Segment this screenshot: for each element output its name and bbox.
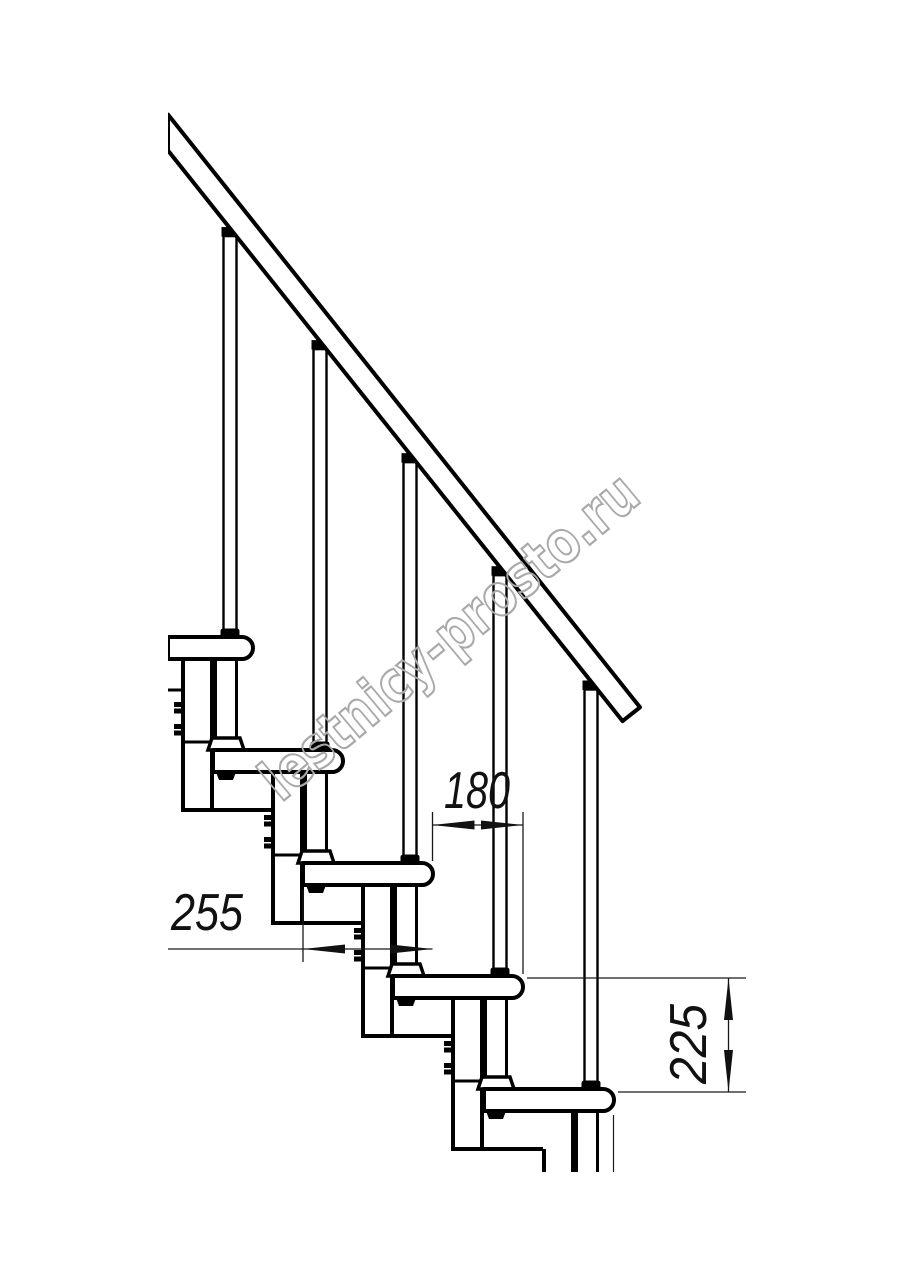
module-box: [183, 659, 212, 810]
baluster-base-cap: [491, 968, 510, 977]
baluster-base-cap: [401, 855, 420, 864]
module-box: [453, 998, 482, 1149]
dimension-arrow: [303, 945, 345, 954]
drawing-canvas: 180 255 225 lestnicy-prosto.ru: [0, 0, 914, 1280]
tread: [393, 976, 523, 998]
dimension-rise-label: 225: [660, 1003, 718, 1085]
bolt: [354, 928, 363, 933]
baluster-base-cap: [582, 1081, 601, 1090]
bolt: [264, 815, 273, 820]
tread: [168, 637, 253, 659]
bolt: [444, 1070, 453, 1075]
bolt: [354, 957, 363, 962]
dimension-arrow: [724, 978, 733, 1020]
staircase-technical-drawing: 180 255 225 lestnicy-prosto.ru: [0, 0, 914, 1280]
support-post: [216, 659, 237, 738]
dimension-arrow: [724, 1050, 733, 1092]
bolt: [264, 844, 273, 849]
dimension-depth-label: 255: [170, 884, 244, 942]
bolt: [174, 709, 183, 714]
dimension-run-label: 180: [444, 762, 510, 820]
bolt: [444, 1048, 453, 1053]
bolt: [174, 731, 183, 736]
tread: [303, 863, 433, 885]
tread: [484, 1089, 614, 1111]
dimension-arrow: [433, 821, 475, 830]
bolt: [264, 822, 273, 827]
bolt: [444, 1041, 453, 1046]
module-box: [363, 885, 392, 1036]
baluster: [224, 236, 237, 637]
bolt: [354, 950, 363, 955]
baluster-base-cap: [221, 629, 240, 638]
bolt: [174, 702, 183, 707]
support-post: [486, 998, 507, 1077]
bolt: [354, 935, 363, 940]
baluster: [585, 689, 598, 1089]
bolt: [264, 837, 273, 842]
bolt: [444, 1063, 453, 1068]
baluster: [314, 349, 327, 750]
bolt: [174, 724, 183, 729]
